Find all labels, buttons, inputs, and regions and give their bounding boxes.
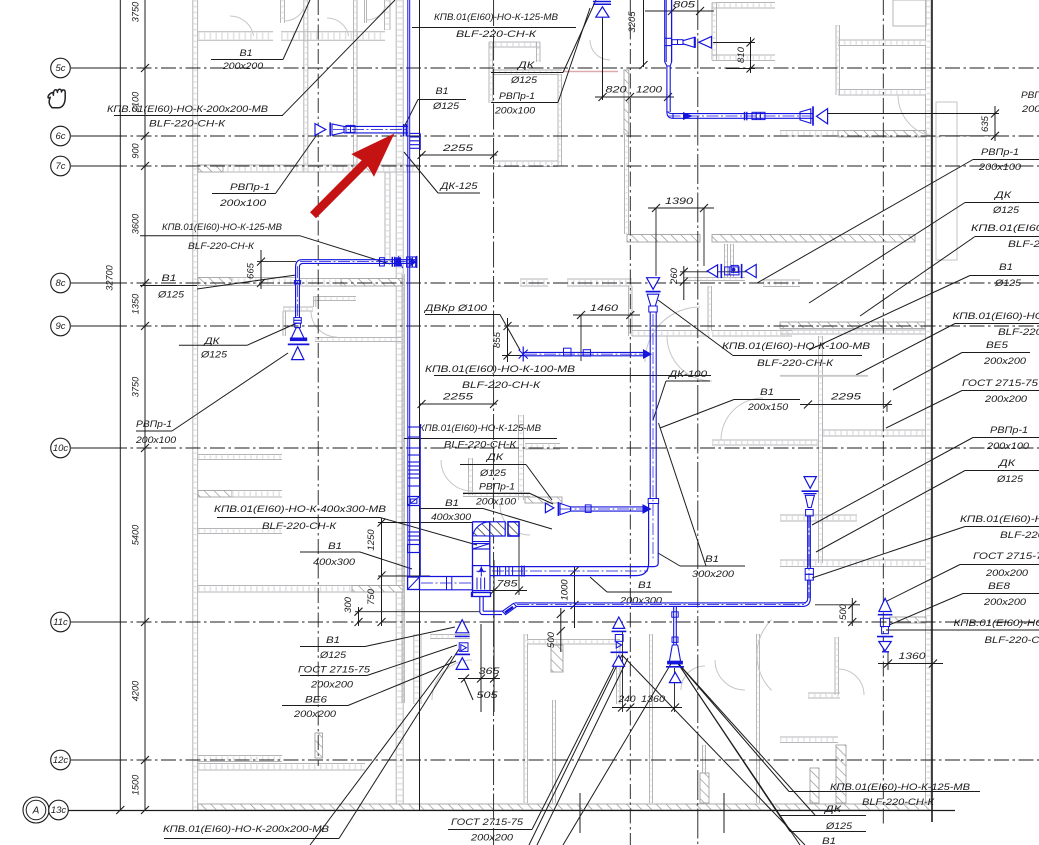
svg-text:785: 785 — [497, 579, 519, 590]
svg-text:B1: B1 — [328, 541, 342, 551]
svg-text:ВЕ6: ВЕ6 — [305, 695, 328, 705]
svg-text:РВПр-1: РВПр-1 — [136, 419, 172, 429]
svg-text:РВПр-1: РВПр-1 — [981, 147, 1019, 157]
svg-text:200х: 200х — [1021, 104, 1039, 114]
svg-text:КПВ.01(EI60)-НО-К-100-МВ: КПВ.01(EI60)-НО-К-100-МВ — [722, 341, 870, 351]
svg-text:ДВКр Ø100: ДВКр Ø100 — [424, 303, 488, 313]
svg-text:ГОСТ 2715-75: ГОСТ 2715-75 — [451, 817, 524, 827]
svg-text:BLF-220-СН-К: BLF-220-СН-К — [462, 380, 541, 390]
svg-text:BLF-220-СН-К: BLF-220-СН-К — [444, 440, 517, 450]
svg-text:ДК-125: ДК-125 — [439, 181, 478, 191]
svg-text:5400: 5400 — [131, 524, 141, 545]
svg-text:КПВ.01(EI60)-НО-К-125-МВ: КПВ.01(EI60)-НО-К-125-МВ — [434, 12, 558, 22]
svg-text:B1: B1 — [760, 387, 774, 397]
svg-text:ДК: ДК — [994, 190, 1012, 200]
svg-text:BLF-220-СН-К: BLF-220-СН-К — [862, 797, 935, 807]
svg-text:ГОСТ 2715-75: ГОСТ 2715-75 — [973, 551, 1039, 561]
svg-text:Ø125: Ø125 — [510, 75, 538, 85]
svg-text:5c: 5c — [55, 63, 65, 74]
svg-text:КПВ.01(EI60)-: КПВ.01(EI60)- — [971, 223, 1039, 233]
svg-text:820: 820 — [606, 85, 628, 96]
svg-text:9c: 9c — [55, 321, 65, 332]
svg-text:ГОСТ 2715-75: ГОСТ 2715-75 — [298, 665, 371, 675]
svg-text:ДК-100: ДК-100 — [668, 369, 708, 379]
svg-text:12c: 12c — [53, 755, 69, 766]
svg-text:200х200: 200х200 — [222, 61, 264, 71]
svg-text:BLF-220-СН-К: BLF-220-СН-К — [757, 358, 834, 368]
svg-text:1000: 1000 — [560, 579, 571, 601]
svg-text:3750: 3750 — [131, 1, 141, 22]
svg-text:РВПр-1: РВПр-1 — [990, 425, 1028, 435]
svg-text:B1: B1 — [705, 554, 719, 564]
svg-text:32700: 32700 — [105, 264, 115, 290]
svg-text:КПВ.01(EI60)-НО-К-125-МВ: КПВ.01(EI60)-НО-К-125-МВ — [419, 423, 541, 433]
svg-text:КПВ.01(EI60)-НО-К-200х200-МВ: КПВ.01(EI60)-НО-К-200х200-МВ — [163, 824, 329, 834]
svg-text:200х200: 200х200 — [984, 394, 1028, 404]
svg-text:1390: 1390 — [665, 196, 694, 207]
svg-text:РВПр-1: РВПр-1 — [479, 482, 515, 492]
svg-text:ВЕ5: ВЕ5 — [986, 340, 1009, 350]
svg-text:300: 300 — [343, 596, 354, 613]
svg-text:200х200: 200х200 — [983, 356, 1027, 366]
svg-text:10c: 10c — [53, 443, 69, 454]
svg-text:ДК: ДК — [486, 452, 504, 462]
svg-text:Ø125: Ø125 — [319, 650, 347, 660]
svg-text:3600: 3600 — [131, 213, 141, 234]
svg-text:КПВ.01(EI60)-НО-К-125-МВ: КПВ.01(EI60)-НО-К-125-МВ — [162, 222, 282, 232]
svg-text:200х200: 200х200 — [985, 568, 1029, 578]
svg-text:1360: 1360 — [641, 694, 666, 705]
svg-text:ДК: ДК — [824, 804, 842, 814]
svg-text:1200: 1200 — [636, 85, 663, 96]
svg-text:200х150: 200х150 — [747, 402, 789, 412]
svg-text:240: 240 — [617, 694, 636, 705]
svg-text:505: 505 — [477, 690, 499, 701]
svg-text:3205: 3205 — [627, 11, 638, 33]
svg-text:Ø125: Ø125 — [432, 101, 460, 111]
svg-text:РВПр-1: РВПр-1 — [230, 182, 270, 192]
svg-text:500: 500 — [838, 603, 849, 620]
svg-text:B1: B1 — [999, 262, 1013, 272]
svg-text:Ø125: Ø125 — [992, 205, 1020, 215]
svg-text:РВПр-1: РВПр-1 — [499, 91, 535, 101]
svg-text:2255: 2255 — [442, 143, 474, 154]
svg-text:635: 635 — [980, 115, 991, 132]
svg-text:13c: 13c — [51, 805, 67, 816]
svg-text:ГОСТ 2715-75: ГОСТ 2715-75 — [962, 378, 1039, 388]
svg-text:665: 665 — [246, 262, 257, 279]
svg-text:A: A — [32, 805, 40, 816]
svg-text:BLF-220-СН-К: BLF-220-СН-К — [262, 521, 337, 531]
svg-text:200х200: 200х200 — [310, 680, 354, 690]
svg-text:КПВ.01(EI60)-НО-К-400х300-МВ: КПВ.01(EI60)-НО-К-400х300-МВ — [214, 504, 386, 514]
svg-text:200х200: 200х200 — [983, 597, 1027, 607]
svg-text:200х100: 200х100 — [135, 435, 177, 445]
svg-text:810: 810 — [736, 46, 747, 63]
svg-text:750: 750 — [366, 588, 377, 605]
svg-text:1350: 1350 — [131, 293, 141, 314]
svg-text:11c: 11c — [53, 617, 68, 628]
svg-text:B1: B1 — [638, 580, 652, 590]
svg-text:ДК: ДК — [203, 336, 220, 346]
svg-text:КПВ.01(EI60)-НО-К-: КПВ.01(EI60)-НО-К- — [954, 618, 1039, 628]
svg-text:1500: 1500 — [131, 774, 141, 795]
svg-text:КПВ.01(EI60)-НО: КПВ.01(EI60)-НО — [960, 514, 1039, 524]
svg-text:КПВ.01(EI60)-НО-: КПВ.01(EI60)-НО- — [953, 311, 1039, 321]
svg-text:ДК: ДК — [998, 458, 1016, 468]
svg-text:BLF-220-: BLF-220- — [1000, 530, 1039, 540]
svg-text:1360: 1360 — [899, 651, 927, 662]
svg-text:Ø125: Ø125 — [200, 350, 228, 360]
svg-text:500: 500 — [546, 631, 557, 648]
svg-text:8c: 8c — [55, 278, 65, 289]
svg-text:Ø125: Ø125 — [994, 278, 1022, 288]
svg-text:B1: B1 — [822, 836, 836, 845]
svg-text:B1: B1 — [162, 273, 177, 283]
svg-text:BLF-220-С: BLF-220-С — [985, 635, 1039, 645]
svg-text:200х300: 200х300 — [619, 596, 663, 606]
svg-text:B1: B1 — [445, 498, 459, 508]
svg-text:200х100: 200х100 — [986, 441, 1030, 451]
svg-text:1460: 1460 — [590, 303, 619, 314]
svg-text:BLF-220-СН-К: BLF-220-СН-К — [188, 241, 255, 251]
svg-text:200х200: 200х200 — [293, 709, 337, 719]
svg-text:КПВ.01(EI60)-НО-К-125-МВ: КПВ.01(EI60)-НО-К-125-МВ — [830, 782, 970, 792]
svg-text:B1: B1 — [326, 635, 340, 645]
svg-text:BLF-220-СН-К: BLF-220-СН-К — [456, 29, 537, 39]
svg-text:КПВ.01(EI60)-НО-К-200х200-МВ: КПВ.01(EI60)-НО-К-200х200-МВ — [107, 104, 268, 114]
svg-text:805: 805 — [673, 0, 696, 11]
svg-text:260: 260 — [669, 267, 680, 285]
svg-text:BLF-220: BLF-220 — [998, 327, 1039, 337]
svg-text:900: 900 — [131, 142, 141, 158]
svg-text:BLF-2: BLF-2 — [1008, 239, 1039, 249]
svg-text:Ø125: Ø125 — [825, 821, 853, 831]
svg-text:Ø125: Ø125 — [157, 290, 185, 300]
svg-text:400х300: 400х300 — [431, 512, 472, 522]
svg-text:200х100: 200х100 — [494, 106, 536, 116]
svg-text:200х100: 200х100 — [475, 497, 517, 507]
svg-text:200х200: 200х200 — [470, 833, 514, 843]
svg-text:7c: 7c — [55, 161, 65, 172]
svg-text:ВЕ8: ВЕ8 — [988, 581, 1011, 591]
svg-text:B1: B1 — [240, 48, 253, 58]
svg-text:КПВ.01(EI60)-НО-К-100-МВ: КПВ.01(EI60)-НО-К-100-МВ — [425, 364, 575, 374]
svg-text:200х100: 200х100 — [219, 198, 267, 208]
svg-text:2295: 2295 — [830, 392, 862, 403]
svg-text:2255: 2255 — [442, 392, 474, 403]
svg-text:6c: 6c — [55, 131, 65, 142]
svg-text:BLF-220-СН-К: BLF-220-СН-К — [149, 119, 226, 129]
svg-text:РВПр: РВПр — [1021, 90, 1039, 100]
svg-text:1250: 1250 — [366, 529, 377, 551]
svg-text:Ø125: Ø125 — [996, 474, 1024, 484]
svg-text:Ø125: Ø125 — [479, 468, 507, 478]
svg-text:3750: 3750 — [131, 376, 141, 397]
svg-text:B1: B1 — [436, 86, 449, 96]
svg-text:855: 855 — [492, 331, 503, 348]
svg-text:4200: 4200 — [131, 680, 141, 701]
svg-text:365: 365 — [479, 666, 501, 677]
svg-text:ДК: ДК — [517, 60, 535, 70]
svg-text:400х300: 400х300 — [313, 557, 356, 567]
svg-text:200х100: 200х100 — [978, 162, 1022, 172]
svg-text:300х200: 300х200 — [692, 569, 735, 579]
